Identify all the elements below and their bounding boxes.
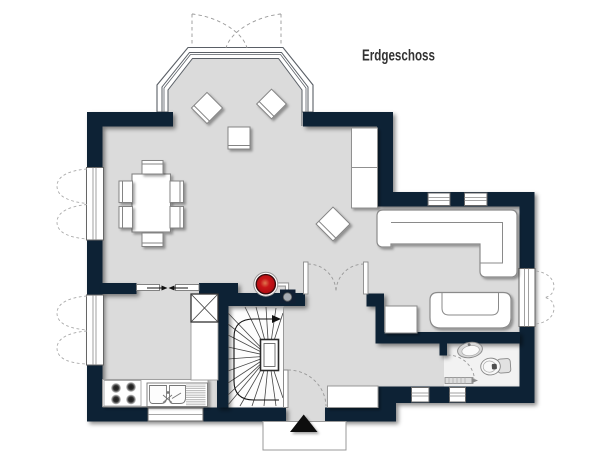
svg-text:Erdgeschoss: Erdgeschoss: [362, 48, 435, 65]
